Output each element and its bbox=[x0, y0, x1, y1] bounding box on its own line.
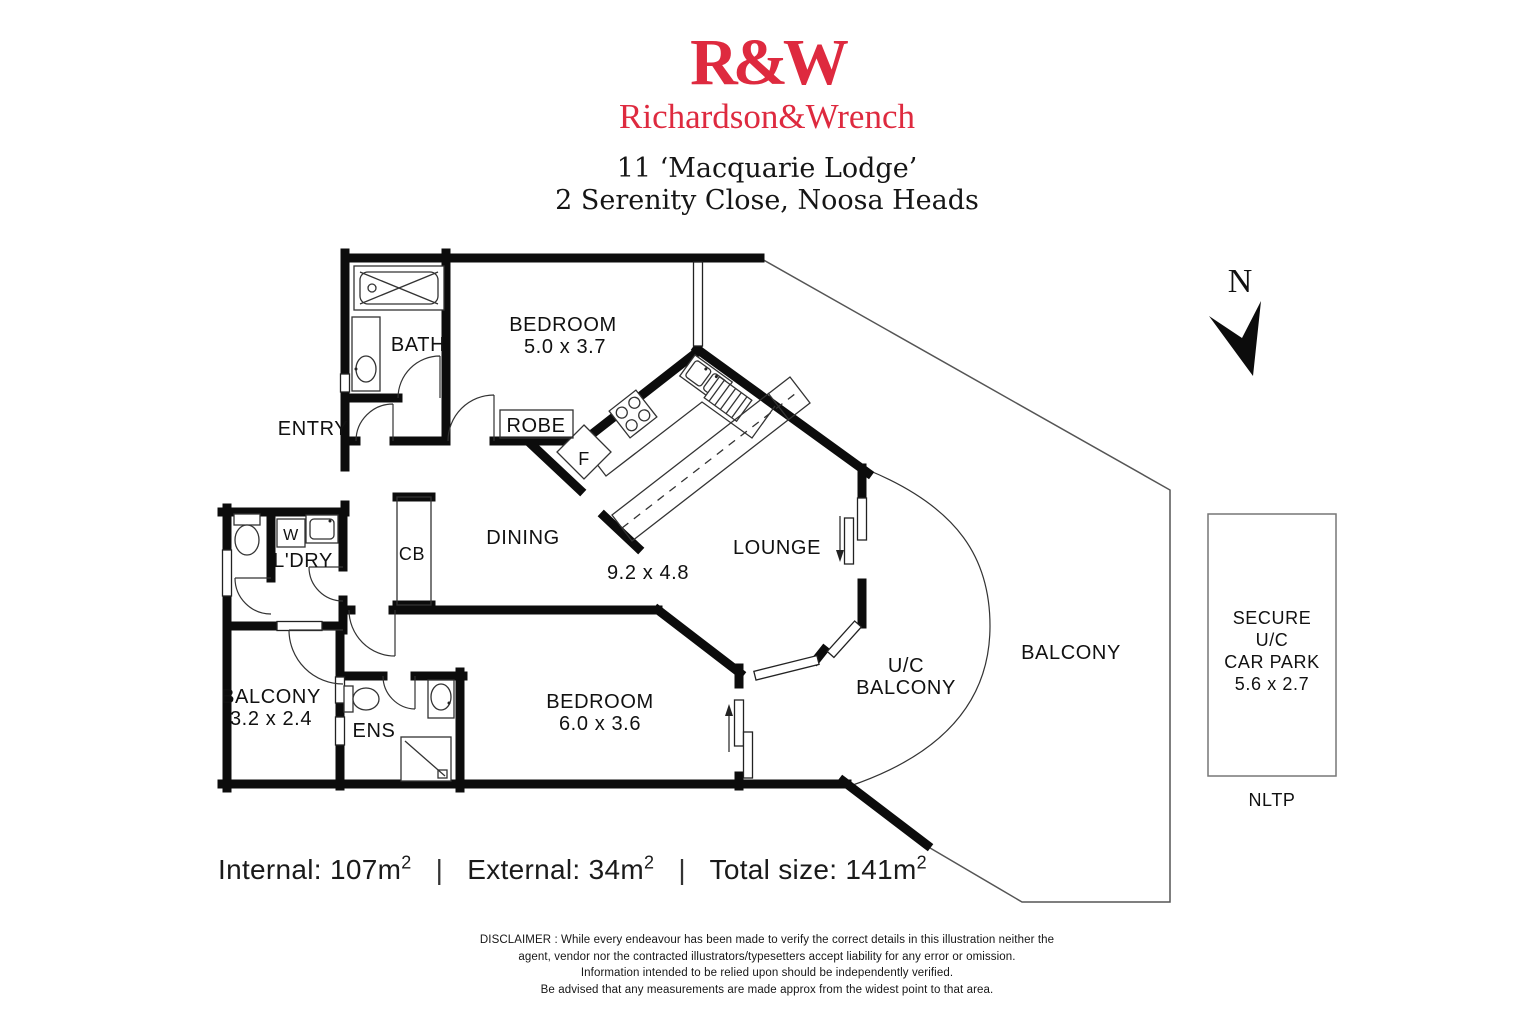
disclaimer-line3: Information intended to be relied upon s… bbox=[0, 965, 1534, 982]
label-robe: ROBE bbox=[506, 415, 565, 437]
label-fridge: F bbox=[578, 449, 590, 469]
balcony-outline bbox=[760, 258, 1170, 902]
internal-area-label: Internal: bbox=[218, 854, 322, 885]
ens-vanity bbox=[428, 680, 454, 718]
external-area-value: 34m bbox=[589, 854, 644, 885]
lounge-slider bbox=[836, 516, 854, 564]
label-dining: DINING bbox=[486, 527, 560, 549]
label-bedroom1: BEDROOM bbox=[509, 314, 617, 336]
uc-balcony-arc bbox=[850, 470, 990, 786]
disclaimer-line4: Be advised that any measurements are mad… bbox=[0, 982, 1534, 999]
total-sup: 2 bbox=[917, 853, 927, 873]
hall-balcony-window bbox=[277, 622, 322, 631]
label-balcony-left-dims: 3.2 x 2.4 bbox=[230, 708, 312, 730]
bathtub bbox=[354, 266, 444, 310]
disclaimer: DISCLAIMER : While every endeavour has b… bbox=[0, 932, 1534, 998]
label-bedroom2-dims: 6.0 x 3.6 bbox=[559, 713, 641, 735]
internal-area-value: 107m bbox=[330, 854, 401, 885]
north-arrow-icon bbox=[1209, 301, 1261, 376]
label-uc-balcony-2: BALCONY bbox=[856, 677, 956, 699]
separator-1: | bbox=[436, 854, 444, 885]
label-cupboard: CB bbox=[399, 544, 425, 564]
laundry-window bbox=[223, 550, 232, 596]
area-summary: Internal: 107m2 | External: 34m2 | Total… bbox=[218, 854, 927, 886]
label-bath: BATH bbox=[391, 334, 445, 356]
label-balcony-left: BALCONY bbox=[221, 686, 321, 708]
label-carpark-1: SECURE bbox=[1233, 608, 1312, 628]
label-lounge: LOUNGE bbox=[733, 537, 821, 559]
external-area-label: External: bbox=[467, 854, 580, 885]
label-carpark-3: CAR PARK bbox=[1224, 652, 1320, 672]
label-laundry: L'DRY bbox=[273, 550, 333, 572]
internal-sup: 2 bbox=[401, 853, 411, 873]
north-label: N bbox=[1228, 263, 1253, 300]
lounge-corner-window-2 bbox=[754, 656, 819, 680]
ens-toilet bbox=[344, 686, 379, 712]
floorplan-page: R&W Richardson&Wrench 11 ‘Macquarie Lodg… bbox=[0, 0, 1534, 1025]
bedroom2-slider bbox=[725, 700, 753, 778]
shower bbox=[401, 737, 451, 781]
lounge-window bbox=[858, 498, 867, 540]
separator-2: | bbox=[678, 854, 686, 885]
label-carpark-2: U/C bbox=[1256, 630, 1289, 650]
total-area-value: 141m bbox=[845, 854, 916, 885]
label-uc-balcony-1: U/C bbox=[888, 655, 924, 677]
label-washer: W bbox=[283, 527, 299, 544]
bath-toilet bbox=[352, 317, 380, 391]
bath-window bbox=[341, 374, 350, 392]
lounge-corner-window-1 bbox=[827, 621, 861, 657]
ens-balcony-window-2 bbox=[336, 717, 345, 745]
stove-icon bbox=[609, 390, 657, 438]
label-entry: ENTRY bbox=[278, 418, 348, 440]
laundry-tub bbox=[306, 515, 338, 543]
bedroom1-window bbox=[694, 262, 703, 346]
ens-balcony-window-1 bbox=[336, 677, 345, 703]
wc-toilet bbox=[234, 514, 260, 555]
disclaimer-line2: agent, vendor nor the contracted illustr… bbox=[0, 949, 1534, 966]
label-balcony-right: BALCONY bbox=[1021, 642, 1121, 664]
label-bedroom1-dims: 5.0 x 3.7 bbox=[524, 336, 606, 358]
label-carpark-4: 5.6 x 2.7 bbox=[1235, 674, 1309, 694]
total-area-label: Total size: bbox=[710, 854, 838, 885]
label-living-dims: 9.2 x 4.8 bbox=[607, 562, 689, 584]
label-nltp: NLTP bbox=[1248, 790, 1295, 810]
external-sup: 2 bbox=[644, 853, 654, 873]
label-ensuite: ENS bbox=[353, 720, 396, 742]
label-bedroom2: BEDROOM bbox=[546, 691, 654, 713]
disclaimer-line1: DISCLAIMER : While every endeavour has b… bbox=[0, 932, 1534, 949]
